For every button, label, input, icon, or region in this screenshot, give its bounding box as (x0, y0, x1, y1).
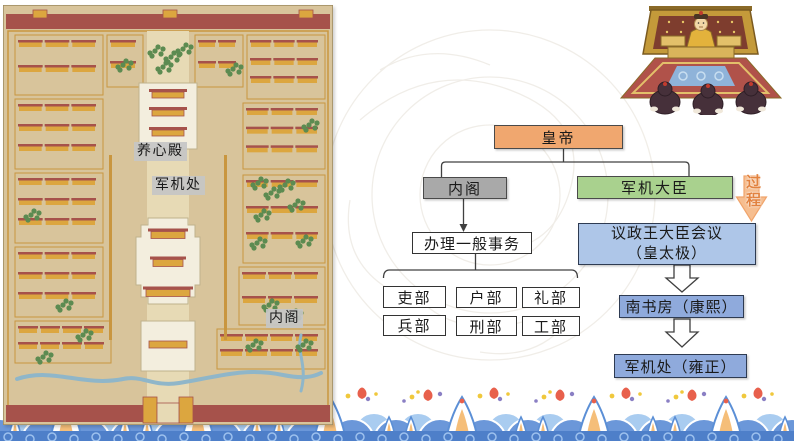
process-label: 过程 (742, 174, 763, 226)
map-label-junjichu: 军机处 (152, 176, 205, 195)
map-label-neige: 内阁 (266, 309, 303, 328)
flowchart-node-grand-ministers: 军机大臣 (577, 176, 733, 199)
forbidden-city-map-art (3, 5, 333, 425)
emperor-audience-illustration-icon (613, 2, 790, 115)
forbidden-city-map (3, 5, 333, 425)
flowchart-node-cabinet: 内阁 (423, 177, 507, 199)
flowchart-node-deliberative-council: 议政王大臣会议 （皇太极） (578, 223, 756, 265)
flowchart-node-ministry: 户部 (456, 287, 517, 308)
flowchart-node-ministry: 刑部 (456, 316, 517, 336)
flowchart-node-south-study: 南书房（康熙） (619, 295, 744, 318)
deliberative-council-line2: （皇太极） (627, 244, 707, 264)
flowchart-node-general-affairs: 办理一般事务 (412, 232, 532, 254)
flowchart-node-emperor: 皇帝 (494, 125, 623, 149)
flowchart-node-grand-council: 军机处（雍正） (614, 354, 747, 378)
map-label-yangxindian: 养心殿 (134, 142, 187, 161)
presentation-slide: 养心殿 军机处 内阁 (0, 0, 794, 441)
deliberative-council-line1: 议政王大臣会议 (611, 224, 723, 244)
flowchart-node-ministry: 吏部 (383, 286, 446, 308)
flowchart-node-ministry: 工部 (522, 316, 580, 336)
flowchart-node-ministry: 礼部 (522, 287, 580, 308)
flowchart-node-ministry: 兵部 (383, 315, 446, 336)
